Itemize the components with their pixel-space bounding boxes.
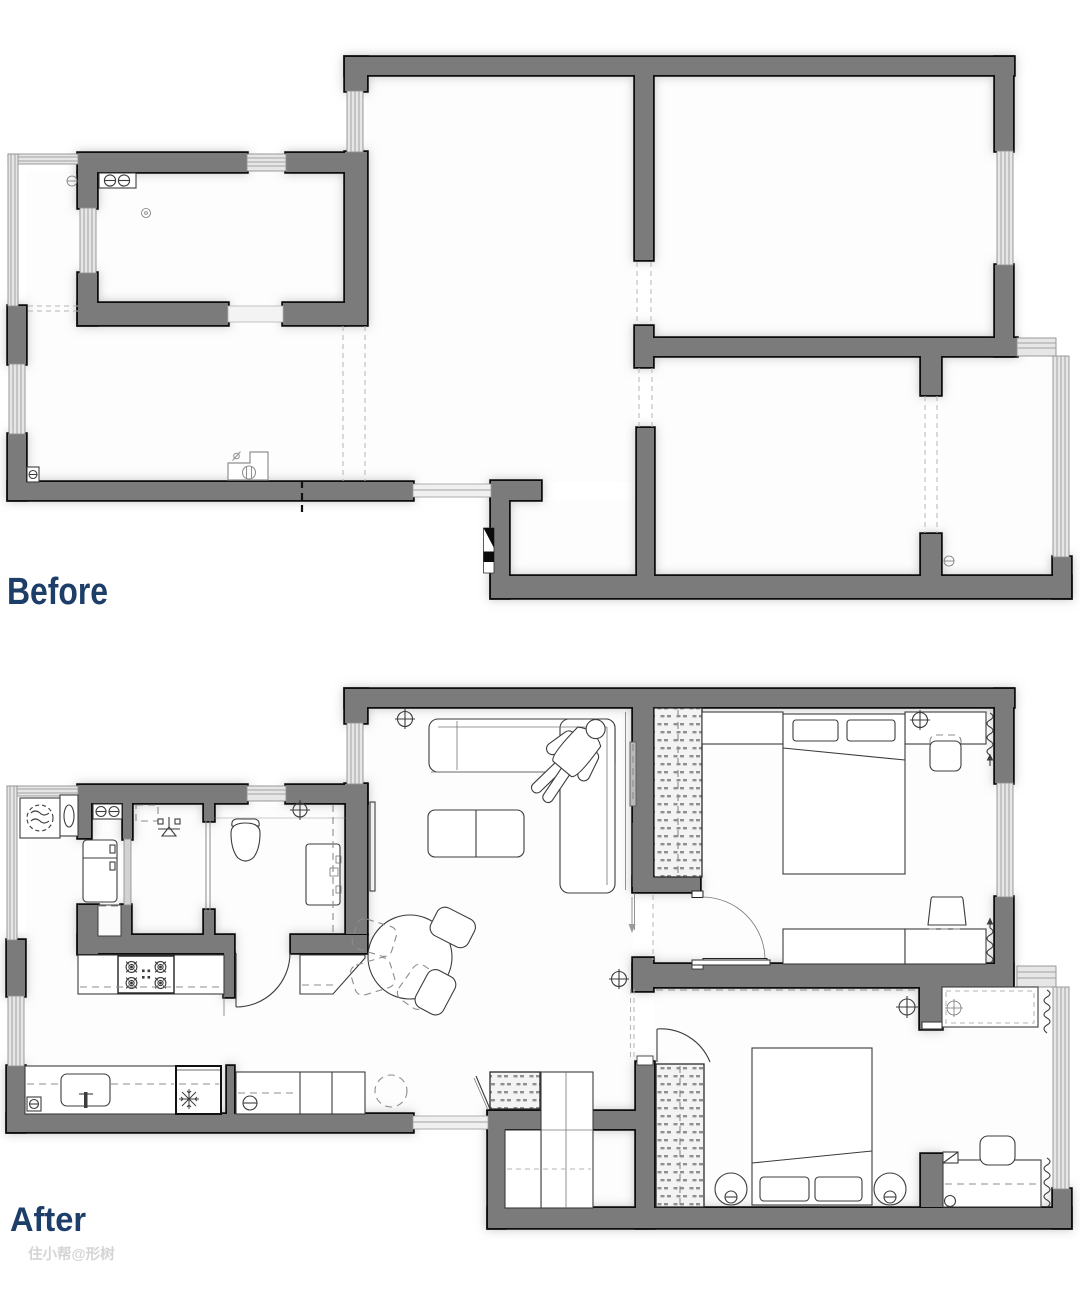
- svg-text:Before: Before: [7, 571, 108, 613]
- svg-text:住小帮@形树: 住小帮@形树: [28, 1245, 115, 1263]
- svg-text:After: After: [10, 1201, 86, 1239]
